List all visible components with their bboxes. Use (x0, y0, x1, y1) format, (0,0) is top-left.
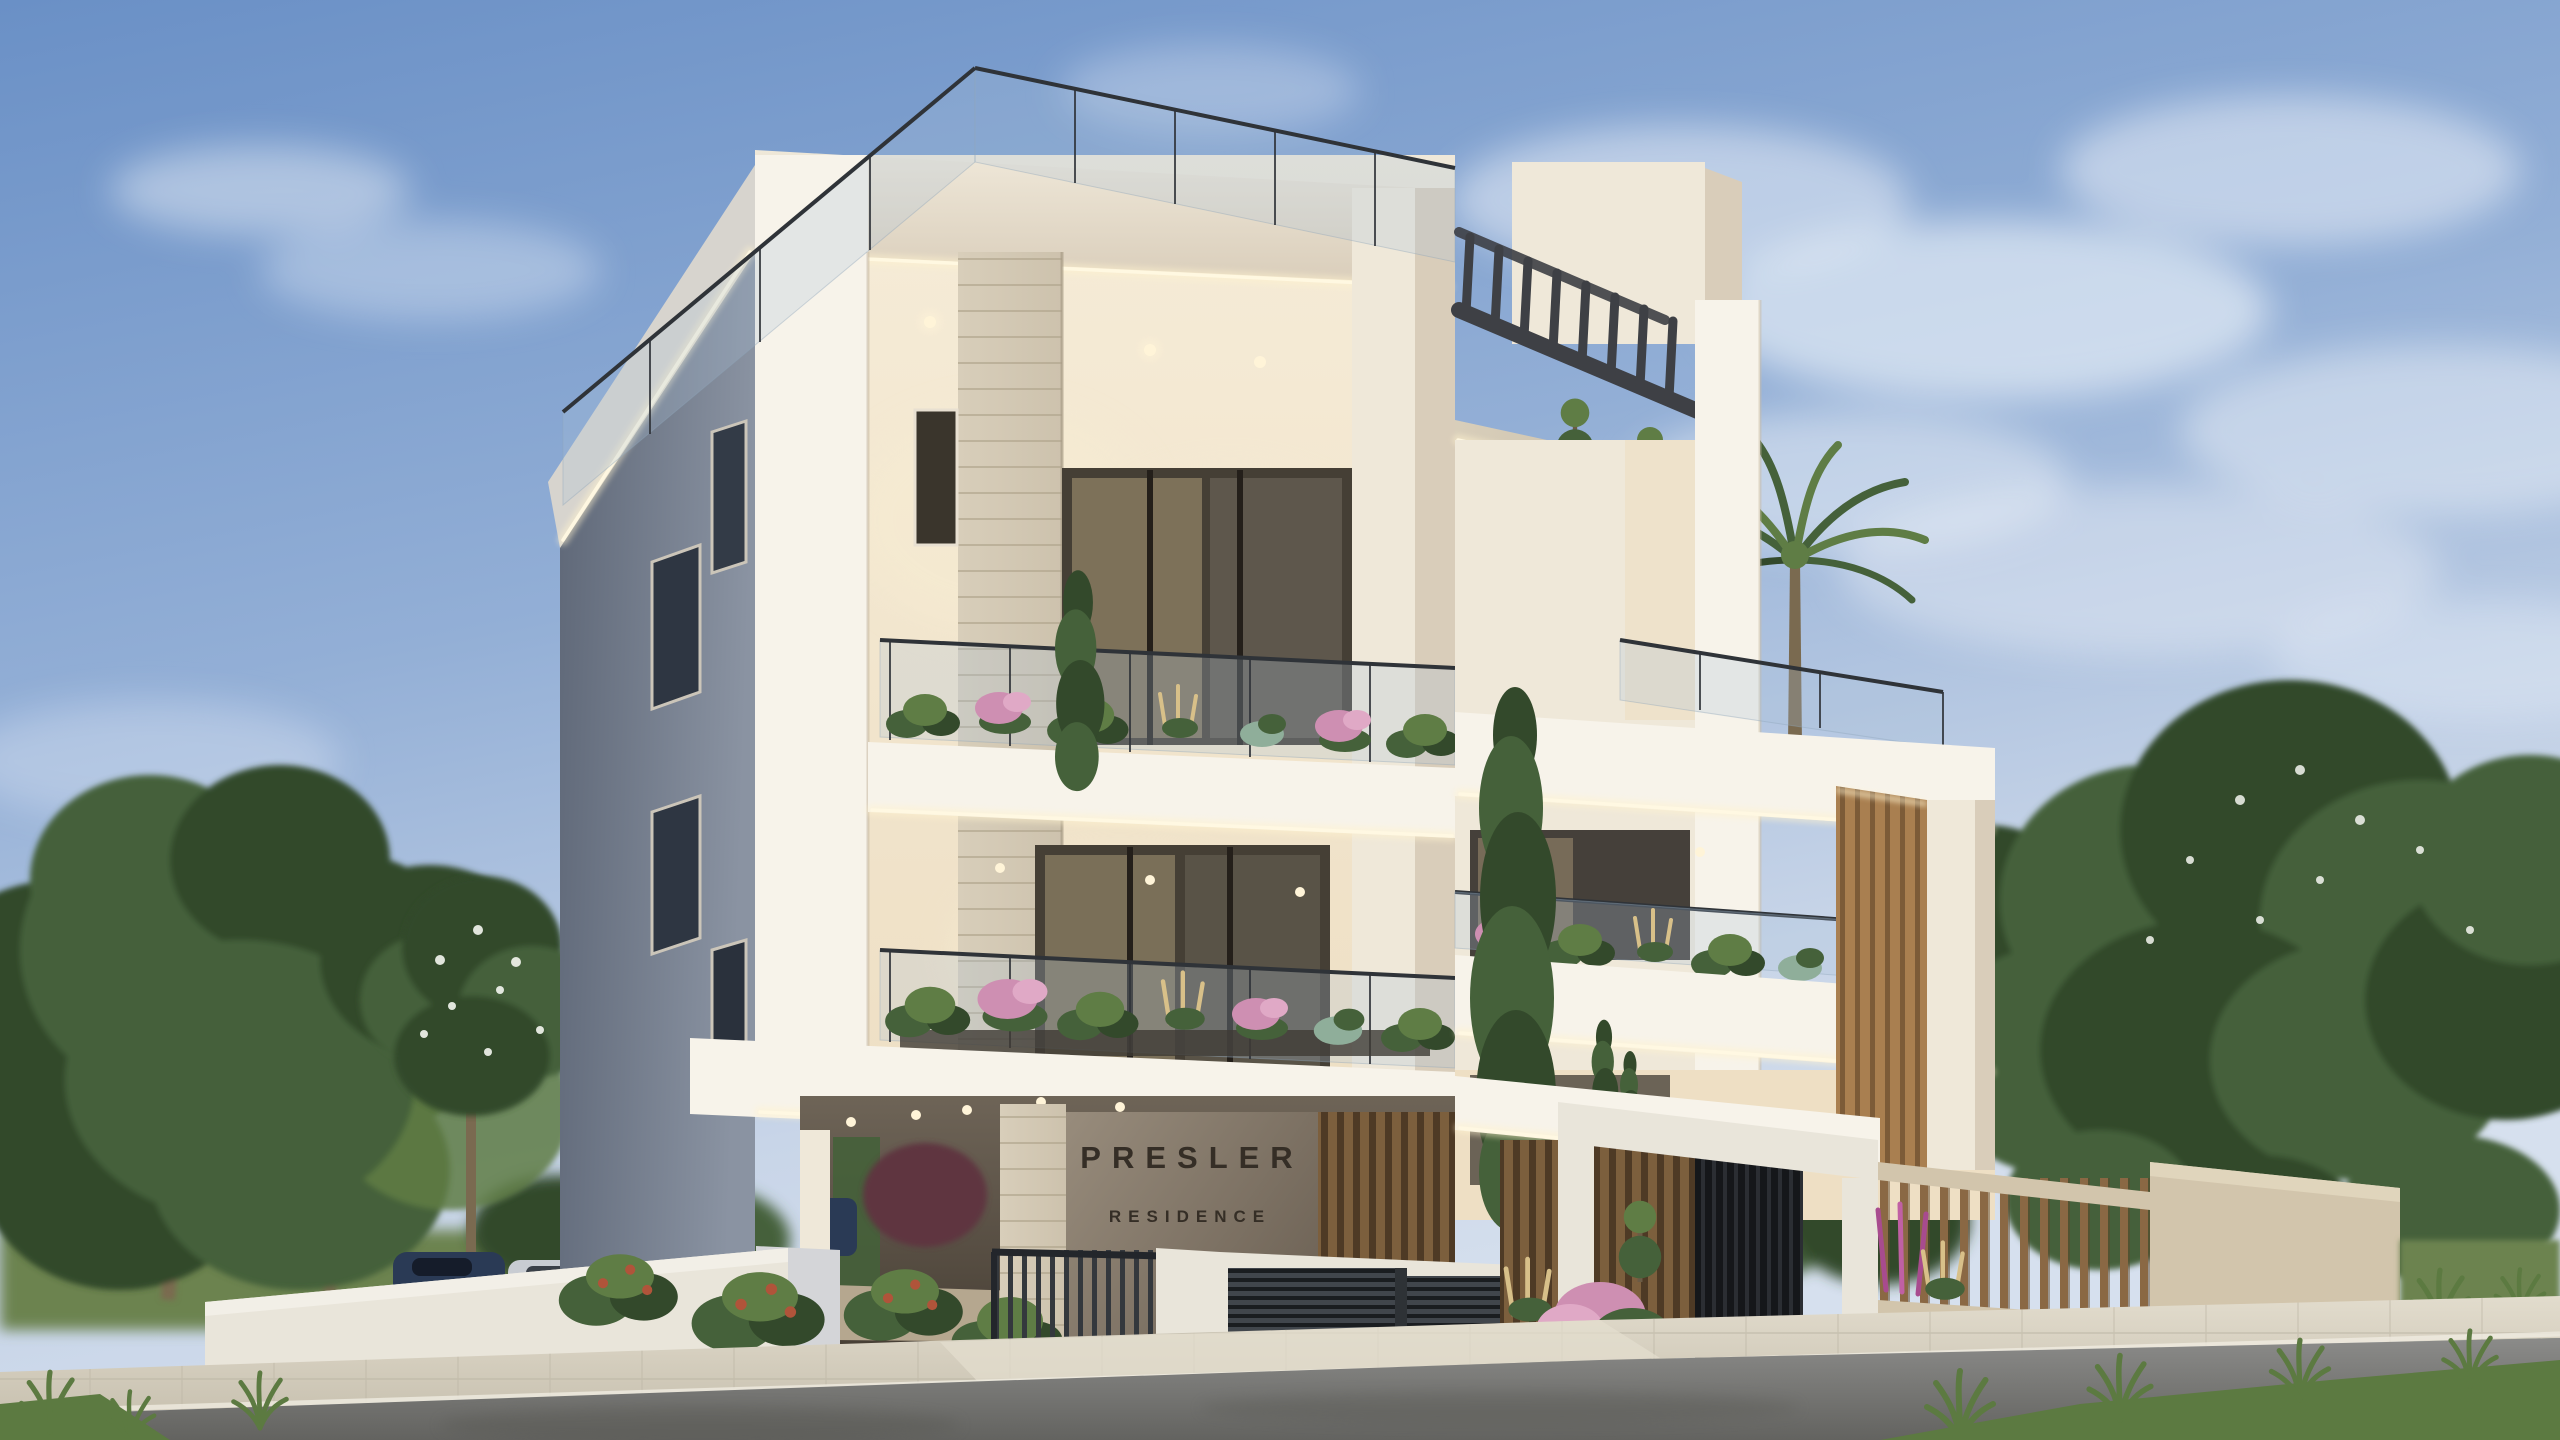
stair-bulkhead (1512, 162, 1705, 344)
sign-subtitle: RESIDENCE (1109, 1207, 1271, 1226)
red-leaf-tree (863, 1143, 987, 1247)
scene-canvas: PRESLER RESIDENCE (0, 0, 2560, 1440)
sign-title: PRESLER (1080, 1140, 1303, 1175)
upper-small-window (915, 410, 957, 545)
architectural-render: PRESLER RESIDENCE (0, 0, 2560, 1440)
